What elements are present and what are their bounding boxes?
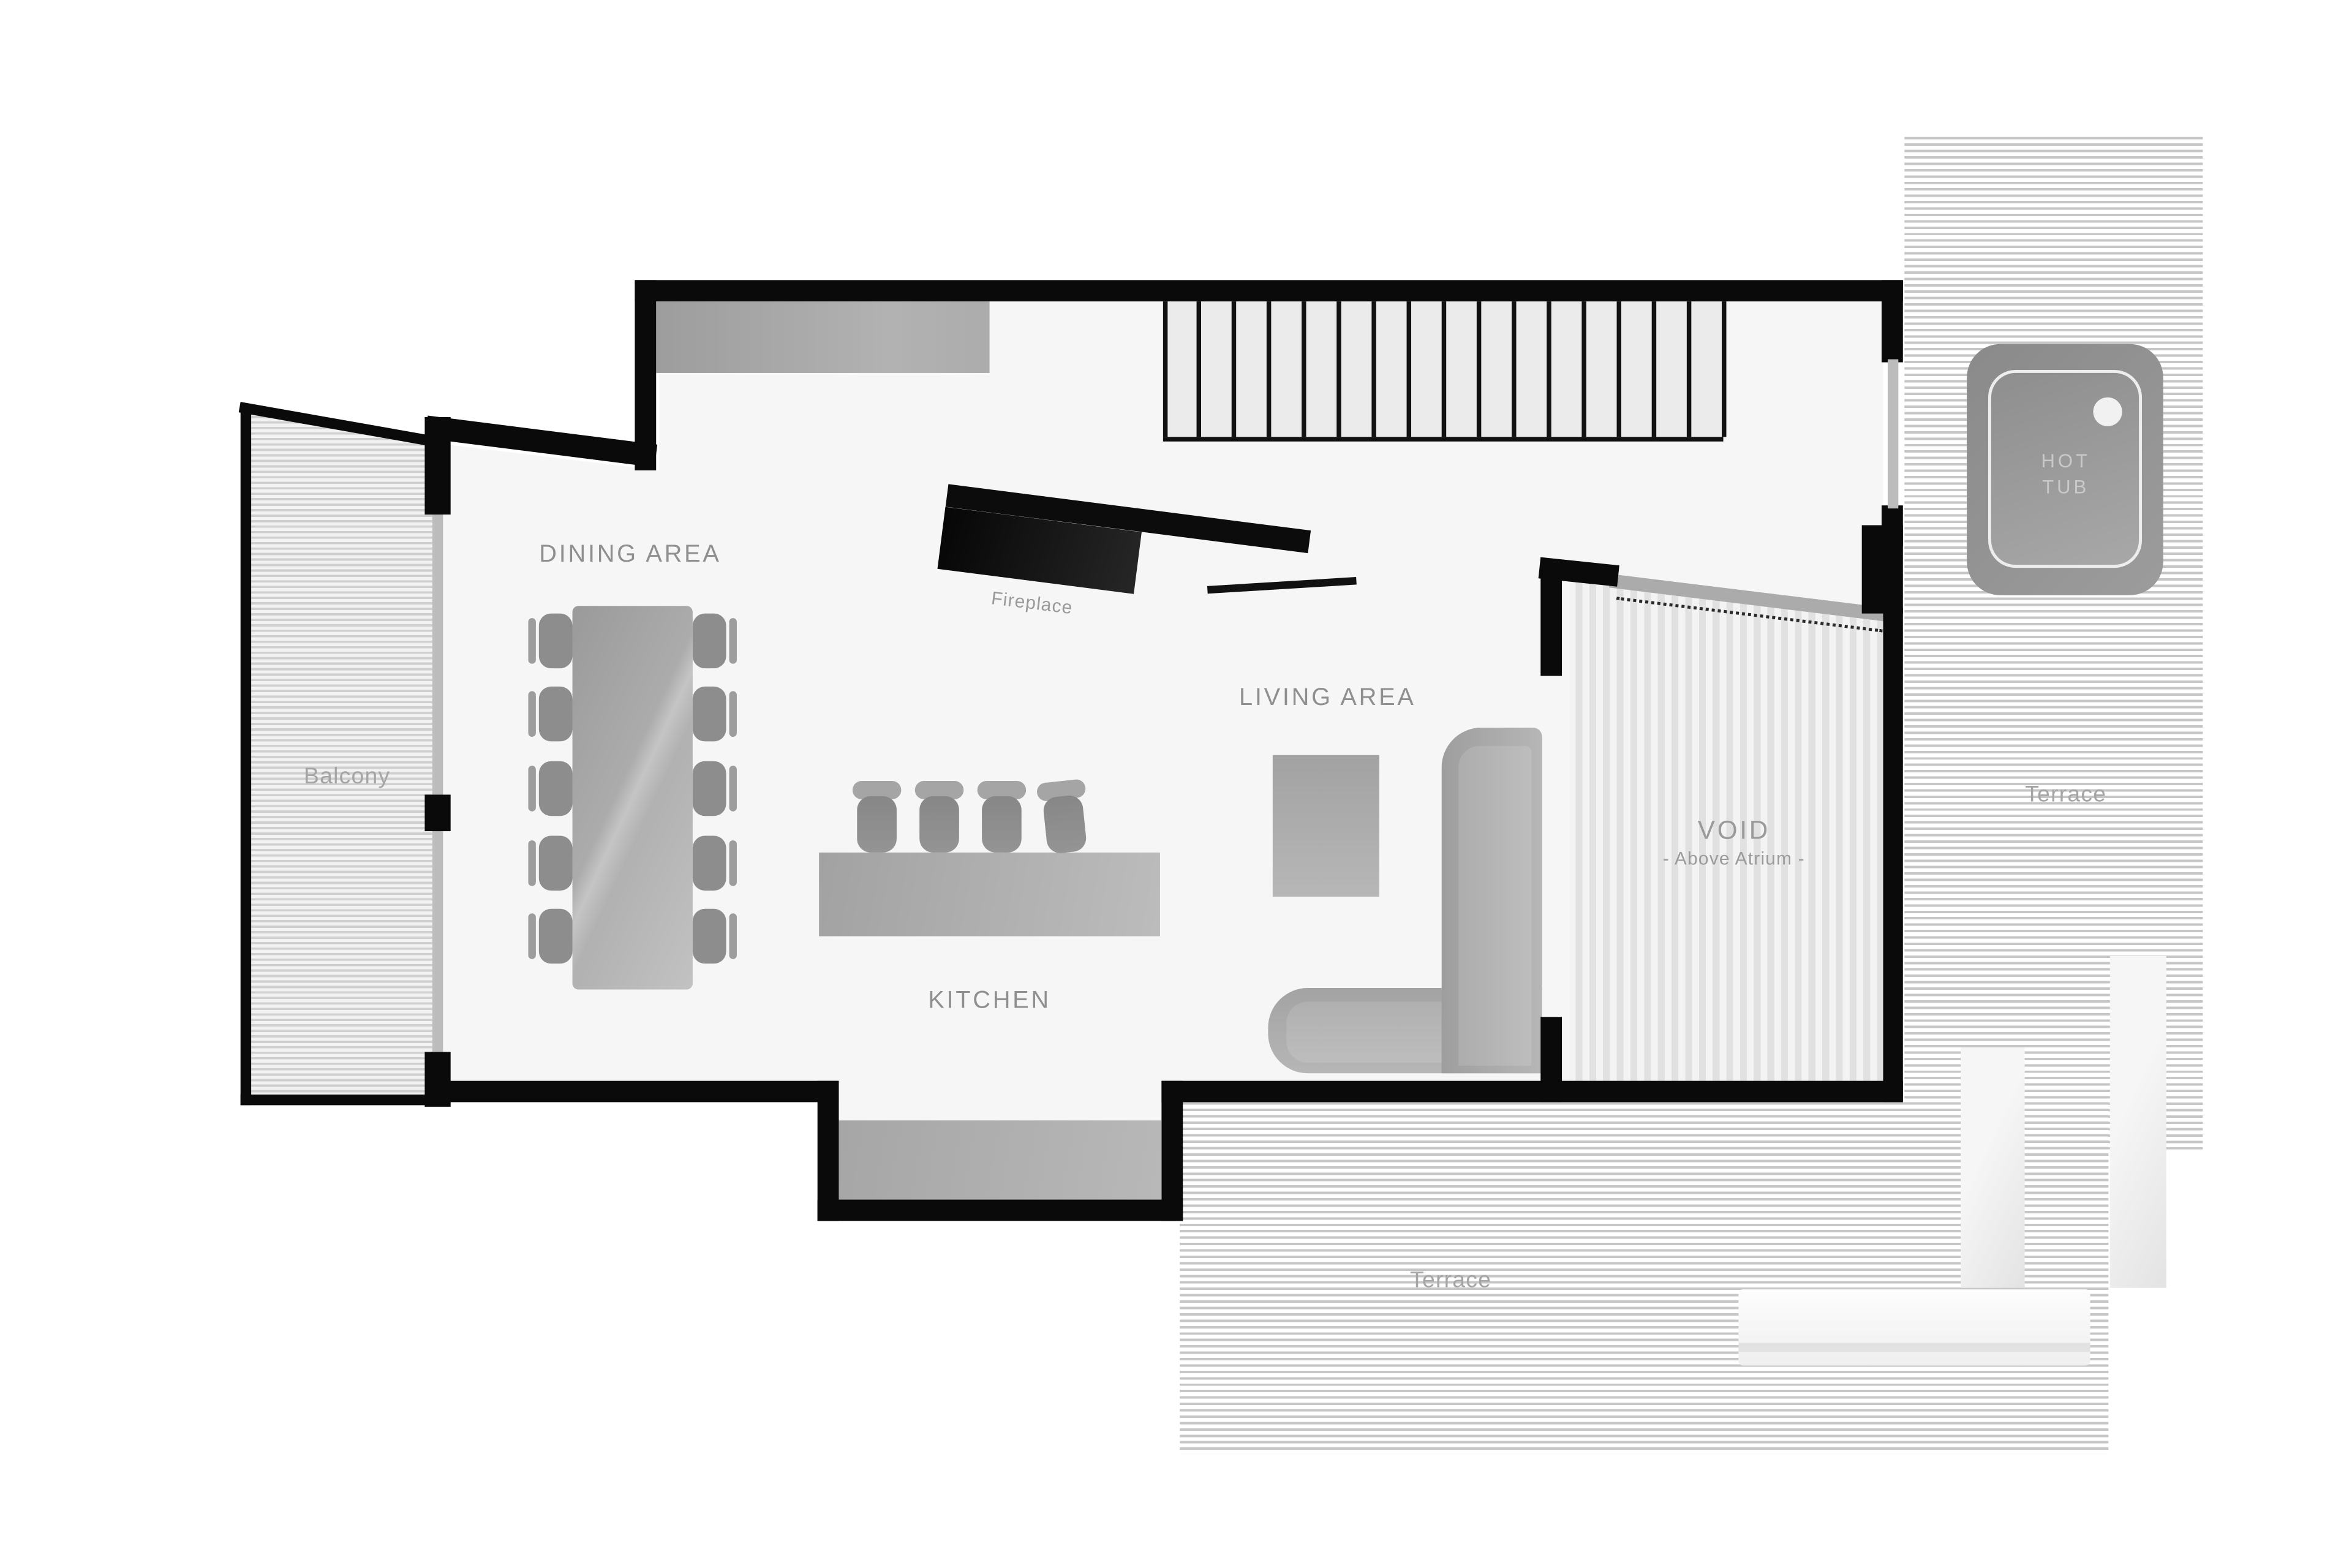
stair-tread-line	[1407, 301, 1411, 437]
wall-bumpout-bottom	[818, 1200, 1183, 1221]
label-balcony: Balcony	[304, 763, 390, 789]
wall-bottom-left	[434, 1081, 839, 1102]
window-block-middle	[424, 794, 450, 831]
bar-stool-seat	[919, 796, 959, 853]
dining-chair-back	[528, 766, 535, 812]
label-hot-tub: HOT TUB	[2041, 449, 2090, 501]
floor-plan: DINING AREA KITCHEN LIVING AREA VOID - A…	[0, 0, 2352, 1568]
hot-tub-label-line1: HOT	[2041, 449, 2090, 475]
stair-tread-line	[1547, 301, 1550, 437]
wall-bottom-right	[1161, 1081, 1902, 1102]
stair-tread-line	[1302, 301, 1305, 437]
label-void-sub: - Above Atrium -	[1663, 848, 1805, 869]
hot-tub-jet-icon	[2093, 398, 2122, 426]
planter	[1961, 1047, 2024, 1288]
bumpout-mat	[839, 1120, 1161, 1199]
wall-void-right	[1883, 608, 1902, 1102]
stair-tread-line	[1267, 301, 1270, 437]
dining-chair-back	[729, 766, 737, 812]
stair-tread-line	[1512, 301, 1515, 437]
stair-tread-line	[1581, 301, 1585, 437]
dining-chair-back	[729, 913, 737, 959]
dining-chair	[693, 761, 726, 816]
stair-tread-line	[1336, 301, 1340, 437]
stair-tread-line	[1232, 301, 1235, 437]
dining-chair	[693, 836, 726, 891]
dining-chair	[693, 909, 726, 963]
label-living-area: LIVING AREA	[1239, 685, 1416, 712]
stair-tread-line	[1442, 301, 1445, 437]
bar-stool-seat	[857, 796, 897, 853]
floor-plan-page: DINING AREA KITCHEN LIVING AREA VOID - A…	[0, 0, 2352, 1567]
living-rug	[1273, 755, 1379, 897]
wall-right-top	[1882, 280, 1903, 362]
sideboard-rug	[656, 301, 989, 373]
dining-table-sheen	[573, 606, 693, 989]
dining-chair-back	[528, 691, 535, 737]
dining-chair	[539, 761, 573, 816]
dining-chair-back	[729, 840, 737, 886]
dining-chair	[539, 836, 573, 891]
dining-chair	[539, 687, 573, 741]
stair-tread-line	[1722, 301, 1725, 437]
dining-chair	[693, 687, 726, 741]
dining-chair-back	[528, 913, 535, 959]
bar-stool-seat	[1042, 794, 1088, 854]
stair-tread-line	[1652, 301, 1656, 437]
wall-living-void-bottom	[1540, 1017, 1562, 1102]
label-terrace-right: Terrace	[2025, 782, 2106, 807]
dining-chair-back	[528, 618, 535, 664]
label-void: VOID	[1698, 816, 1770, 846]
bar-stool	[853, 781, 902, 854]
stair-tread-line	[1687, 301, 1691, 437]
stair-tread-line	[1371, 301, 1375, 437]
planter	[2110, 956, 2166, 1288]
dining-chair	[539, 614, 573, 668]
kitchen-counter	[819, 853, 1160, 937]
sofa-vertical-seat	[1458, 746, 1531, 1066]
bar-stool-seat	[982, 796, 1022, 853]
dining-chair	[539, 909, 573, 963]
terrace-bench	[1738, 1289, 2090, 1365]
balcony-area	[244, 405, 437, 1102]
stair-tread-line	[1617, 301, 1621, 437]
dining-chair-back	[528, 840, 535, 886]
label-kitchen: KITCHEN	[928, 988, 1051, 1016]
stair-tread-line	[1163, 301, 1167, 437]
terrace-bench-edge	[1738, 1343, 2090, 1352]
wall-top	[635, 280, 1902, 301]
balcony-border-bottom	[241, 1095, 439, 1105]
window-block-top	[424, 417, 450, 514]
window-right	[1888, 360, 1898, 509]
bar-stool	[1036, 778, 1093, 856]
label-terrace-bottom: Terrace	[1410, 1267, 1491, 1293]
dining-chair-back	[729, 618, 737, 664]
wall-living-void-top	[1540, 560, 1562, 676]
stair-tread-line	[1197, 301, 1200, 437]
stairs	[1163, 301, 1724, 442]
balcony-border-left	[241, 405, 251, 1105]
dining-chair	[693, 614, 726, 668]
label-dining-area: DINING AREA	[539, 542, 721, 570]
bar-stool	[915, 781, 964, 854]
wall-void-corner	[1862, 525, 1903, 613]
stair-tread-line	[1477, 301, 1480, 437]
window-balcony	[432, 439, 443, 1102]
hot-tub-label-line2: TUB	[2041, 475, 2090, 500]
bar-stool	[978, 781, 1027, 854]
dining-chair-back	[729, 691, 737, 737]
